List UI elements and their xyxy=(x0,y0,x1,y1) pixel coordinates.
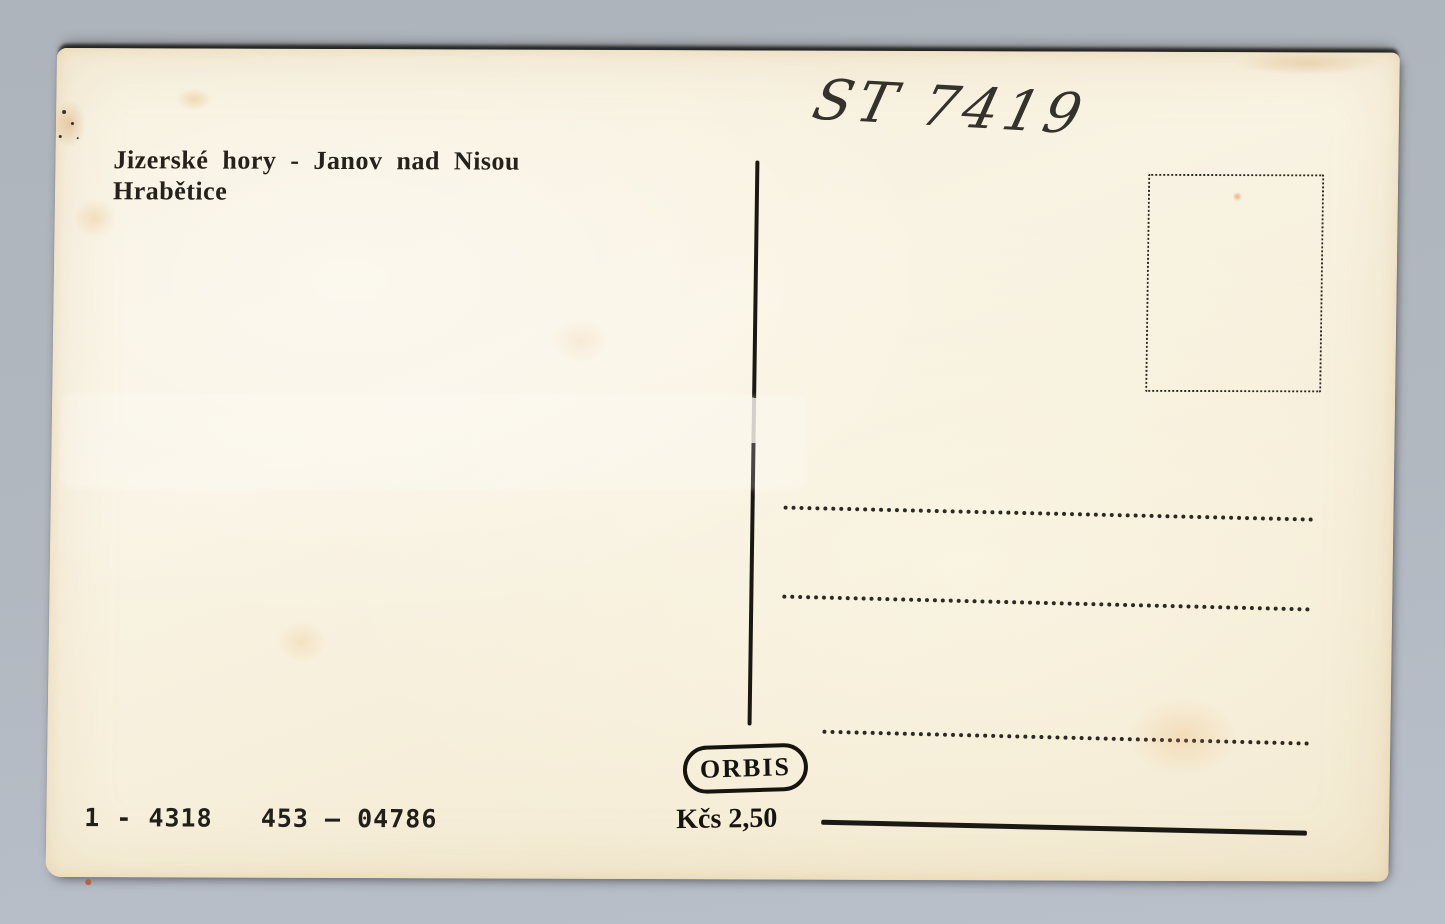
paper-stain xyxy=(276,621,327,663)
scan-watermark-band xyxy=(61,393,807,491)
ink-speck xyxy=(77,137,79,139)
address-line-1 xyxy=(784,506,1314,522)
caption-locality: Hrabětice xyxy=(113,175,520,207)
print-code: 1 - 4318 453 – 04786 xyxy=(84,803,438,833)
caption: Jizerské hory - Janov nad Nisou Hrabětic… xyxy=(113,144,520,207)
paper-stain xyxy=(72,198,117,238)
postcard-scan: Jizerské hory - Janov nad Nisou Hrabětic… xyxy=(0,0,1445,924)
address-line-2 xyxy=(782,595,1310,612)
publisher-stamp: ORBIS xyxy=(682,742,808,794)
stamp-box xyxy=(1145,174,1324,393)
handwritten-catalog-number: ST 7419 xyxy=(807,68,1093,147)
ink-speck xyxy=(62,110,66,114)
price-label: Kčs 2,50 xyxy=(676,803,777,836)
paper-stain xyxy=(52,100,87,148)
postcard-back: Jizerské hory - Janov nad Nisou Hrabětic… xyxy=(45,48,1400,882)
address-line-3 xyxy=(822,730,1309,746)
rust-speck xyxy=(85,879,91,885)
paper-stain xyxy=(176,88,212,110)
ink-speck xyxy=(59,135,62,138)
ink-speck xyxy=(71,122,74,125)
paper-stain xyxy=(1237,52,1377,74)
address-bottom-rule xyxy=(821,820,1307,836)
caption-title: Jizerské hory - Janov nad Nisou xyxy=(113,144,520,176)
paper-stain xyxy=(551,318,612,364)
